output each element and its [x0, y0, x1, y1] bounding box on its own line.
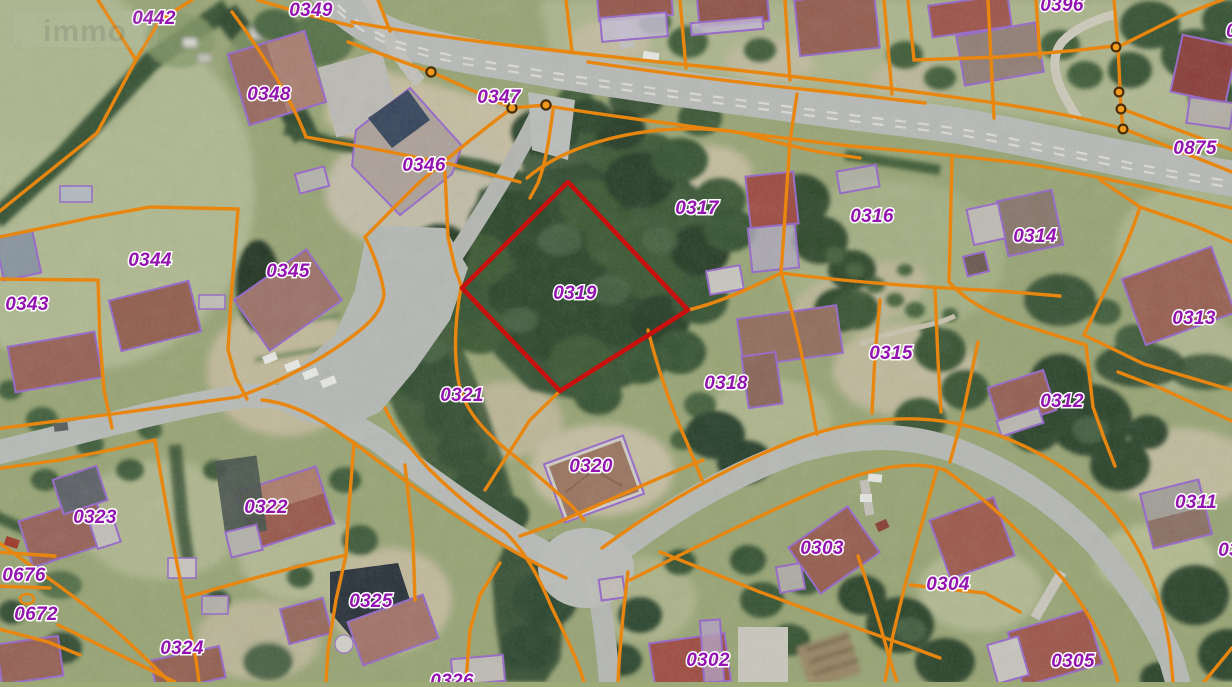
svg-text:0325: 0325	[349, 591, 393, 612]
svg-text:0302: 0302	[686, 650, 730, 671]
svg-text:0676: 0676	[2, 565, 46, 586]
svg-text:0312: 0312	[1040, 391, 1084, 412]
svg-text:0316: 0316	[850, 206, 894, 227]
svg-text:0320: 0320	[569, 456, 613, 477]
svg-text:0323: 0323	[73, 507, 117, 528]
svg-text:0324: 0324	[160, 638, 204, 659]
svg-text:0319: 0319	[553, 283, 597, 304]
svg-text:0396: 0396	[1040, 0, 1084, 16]
svg-text:0345: 0345	[266, 261, 310, 282]
svg-text:0310: 0310	[1218, 540, 1232, 561]
svg-text:0304: 0304	[926, 574, 970, 595]
svg-text:0322: 0322	[244, 497, 288, 518]
svg-text:0318: 0318	[704, 373, 748, 394]
svg-text:0313: 0313	[1172, 308, 1216, 329]
svg-text:0346: 0346	[402, 155, 446, 176]
svg-text:0315: 0315	[869, 343, 913, 364]
svg-text:0305: 0305	[1051, 651, 1095, 672]
svg-text:0349: 0349	[289, 0, 333, 21]
svg-text:0321: 0321	[440, 385, 483, 406]
svg-text:0348: 0348	[247, 84, 291, 105]
svg-text:0311: 0311	[1175, 492, 1217, 513]
svg-text:0672: 0672	[14, 604, 58, 625]
svg-text:0344: 0344	[128, 250, 172, 271]
svg-text:0343: 0343	[5, 294, 49, 315]
svg-text:0317: 0317	[675, 198, 720, 219]
svg-text:immo: immo	[43, 15, 127, 48]
svg-text:0314: 0314	[1013, 226, 1057, 247]
svg-text:0326: 0326	[430, 671, 474, 682]
svg-text:04: 04	[1226, 21, 1232, 42]
svg-text:0875: 0875	[1173, 138, 1217, 159]
svg-text:0303: 0303	[800, 538, 844, 559]
svg-text:0347: 0347	[477, 87, 522, 108]
